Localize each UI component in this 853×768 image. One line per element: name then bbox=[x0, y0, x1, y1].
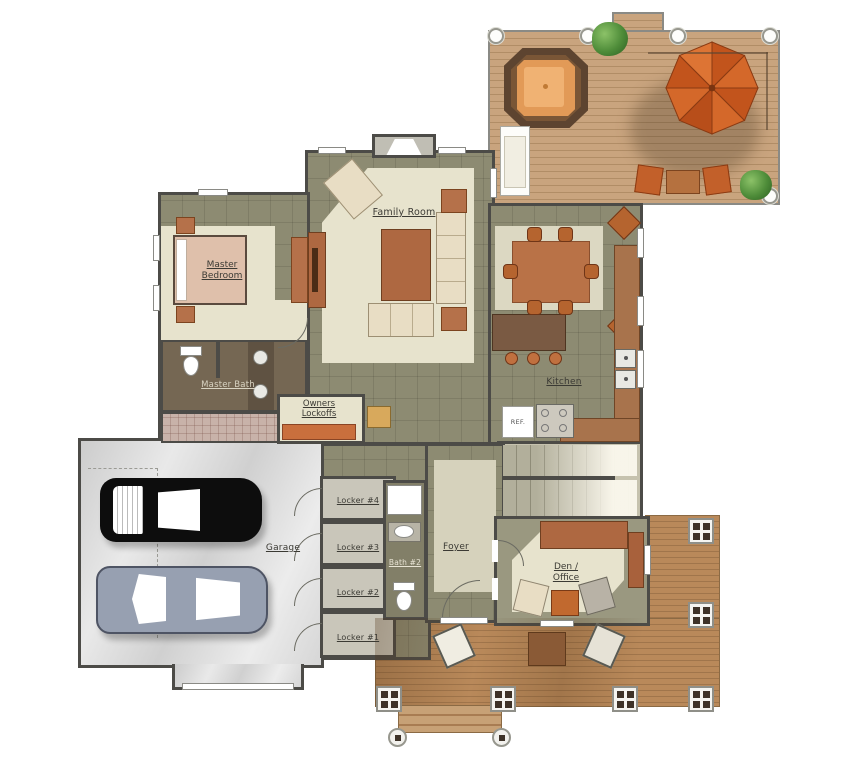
dining-chair bbox=[527, 300, 542, 315]
stove-burner bbox=[559, 409, 567, 417]
den-desk bbox=[540, 521, 628, 549]
owners-lockoffs-label: Owners Lockoffs bbox=[302, 399, 337, 419]
deck-table bbox=[666, 170, 700, 194]
kitchen-counter-right bbox=[614, 245, 640, 441]
car-black-windshield bbox=[158, 489, 200, 531]
nightstand bbox=[176, 217, 195, 234]
tv bbox=[312, 248, 318, 292]
porch-column bbox=[688, 602, 714, 628]
dining-table bbox=[512, 241, 590, 303]
porch-column bbox=[688, 518, 714, 544]
deck-column bbox=[488, 28, 504, 44]
refrigerator: REF. bbox=[502, 406, 534, 438]
window bbox=[438, 147, 466, 154]
hall-bench bbox=[367, 406, 391, 428]
locker-1-label: Locker #1 bbox=[337, 633, 379, 642]
vanity-sink bbox=[253, 350, 268, 365]
porch-footing-dot bbox=[395, 735, 401, 741]
family-room-label: Family Room bbox=[373, 207, 436, 218]
window bbox=[644, 545, 651, 575]
lockoffs-cabinet bbox=[282, 424, 356, 440]
sink-drain-dot bbox=[624, 377, 628, 381]
coffee-table bbox=[381, 229, 431, 301]
stair-divider-wall bbox=[503, 476, 615, 480]
side-table bbox=[441, 189, 467, 213]
dining-chair bbox=[558, 300, 573, 315]
porch-table bbox=[528, 632, 566, 666]
car-black-rear-glass bbox=[113, 486, 143, 534]
garage-label: Garage bbox=[266, 543, 300, 553]
vanity-sink bbox=[253, 384, 268, 399]
front-door-opening bbox=[440, 617, 488, 624]
floor-plan-scene: REF. Family Room Master Bedroom Master B… bbox=[0, 0, 853, 768]
garage-guide-line bbox=[88, 468, 158, 469]
master-bedroom-label-line2: Bedroom bbox=[202, 271, 243, 282]
bed-pillows bbox=[176, 239, 187, 301]
island-stool bbox=[549, 352, 562, 365]
side-table bbox=[441, 307, 467, 331]
bath-2-shower bbox=[387, 485, 422, 515]
porch-column bbox=[688, 686, 714, 712]
stair-lower-fade bbox=[503, 480, 637, 517]
window bbox=[198, 189, 228, 196]
stove-burner bbox=[559, 424, 567, 432]
foyer-rug bbox=[434, 460, 496, 592]
stove-burner bbox=[541, 424, 549, 432]
dining-chair bbox=[527, 227, 542, 242]
window bbox=[540, 620, 574, 627]
window bbox=[637, 350, 644, 388]
den-door-opening bbox=[492, 540, 498, 562]
hot-tub-drain bbox=[543, 84, 548, 89]
window bbox=[637, 228, 644, 258]
dining-chair bbox=[584, 264, 599, 279]
sofa-right bbox=[436, 212, 466, 304]
stove-burner bbox=[541, 409, 549, 417]
owners-lockoffs-line2: Lockoffs bbox=[302, 409, 337, 419]
deck-chair bbox=[702, 164, 732, 195]
master-bath-partition bbox=[216, 342, 220, 378]
sofa-bottom bbox=[368, 303, 434, 337]
refrigerator-label: REF. bbox=[511, 418, 526, 426]
den-bookcase bbox=[628, 532, 644, 588]
deck-column bbox=[670, 28, 686, 44]
locker-3-label: Locker #3 bbox=[337, 543, 379, 552]
porch-steps bbox=[398, 705, 502, 733]
island-stool bbox=[527, 352, 540, 365]
den-door-opening bbox=[492, 578, 498, 600]
bath-2-toilet-tank bbox=[393, 582, 415, 591]
car-gray bbox=[96, 566, 268, 634]
window bbox=[637, 296, 644, 326]
car-gray-rear-glass bbox=[132, 574, 166, 624]
master-bedroom-label-line1: Master bbox=[202, 260, 243, 271]
stair-upper-fade bbox=[503, 445, 637, 476]
foyer-label: Foyer bbox=[443, 542, 469, 552]
den-office-line2: Office bbox=[553, 573, 579, 584]
window bbox=[490, 168, 497, 198]
owners-lockoffs-line1: Owners bbox=[302, 399, 337, 409]
bath-2-sink bbox=[394, 525, 414, 538]
dining-chair bbox=[503, 264, 518, 279]
deck-rail bbox=[648, 52, 768, 54]
master-bath-label: Master Bath bbox=[201, 380, 255, 390]
porch-column bbox=[490, 686, 516, 712]
porch-column bbox=[612, 686, 638, 712]
car-gray-windshield bbox=[196, 576, 240, 622]
dining-chair bbox=[558, 227, 573, 242]
den-office-label: Den / Office bbox=[553, 562, 579, 584]
garage-door-opening bbox=[182, 683, 294, 690]
den-side-table bbox=[551, 590, 579, 616]
nightstand bbox=[176, 306, 195, 323]
sink-drain-dot bbox=[624, 356, 628, 360]
toilet bbox=[180, 346, 202, 356]
kitchen-label: Kitchen bbox=[546, 377, 581, 387]
island-stool bbox=[505, 352, 518, 365]
window bbox=[318, 147, 346, 154]
kitchen-island bbox=[492, 314, 566, 351]
porch-footing-dot bbox=[499, 735, 505, 741]
locker-2-label: Locker #2 bbox=[337, 588, 379, 597]
window bbox=[153, 285, 160, 311]
deck-rail bbox=[766, 52, 768, 130]
locker-4-label: Locker #4 bbox=[337, 496, 379, 505]
dresser bbox=[291, 237, 308, 303]
window bbox=[153, 235, 160, 261]
master-bedroom-label: Master Bedroom bbox=[202, 260, 243, 282]
porch-column bbox=[376, 686, 402, 712]
lounge-chair-cushion bbox=[504, 136, 526, 188]
bath-2-label: Bath #2 bbox=[389, 558, 421, 567]
deck-chair bbox=[634, 164, 664, 195]
den-office-line1: Den / bbox=[553, 562, 579, 573]
deck-column bbox=[762, 28, 778, 44]
